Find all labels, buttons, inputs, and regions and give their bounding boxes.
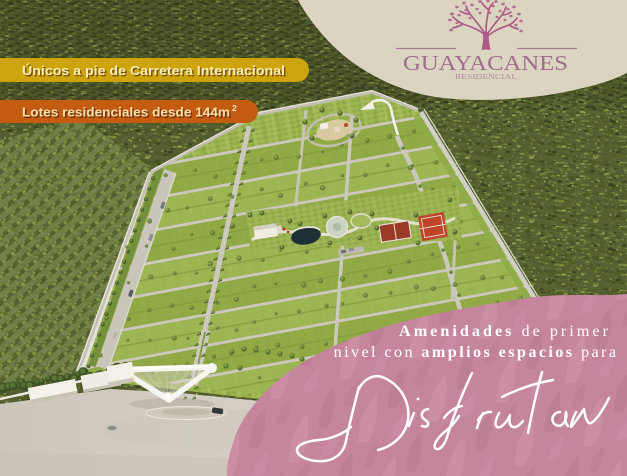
svg-text:2: 2 xyxy=(232,103,237,113)
svg-text:GUAYACANES: GUAYACANES xyxy=(403,51,568,75)
svg-text:RESIDENCIAL: RESIDENCIAL xyxy=(455,74,517,81)
svg-text:Amenidades de primer: Amenidades de primer xyxy=(399,322,611,340)
svg-text:nivel con amplios espacios par: nivel con amplios espacios para xyxy=(334,343,619,361)
svg-text:Lotes residenciales desde 144m: Lotes residenciales desde 144m xyxy=(22,105,230,120)
svg-text:Únicos a pie de Carretera Inte: Únicos a pie de Carretera Internacional xyxy=(22,63,285,78)
